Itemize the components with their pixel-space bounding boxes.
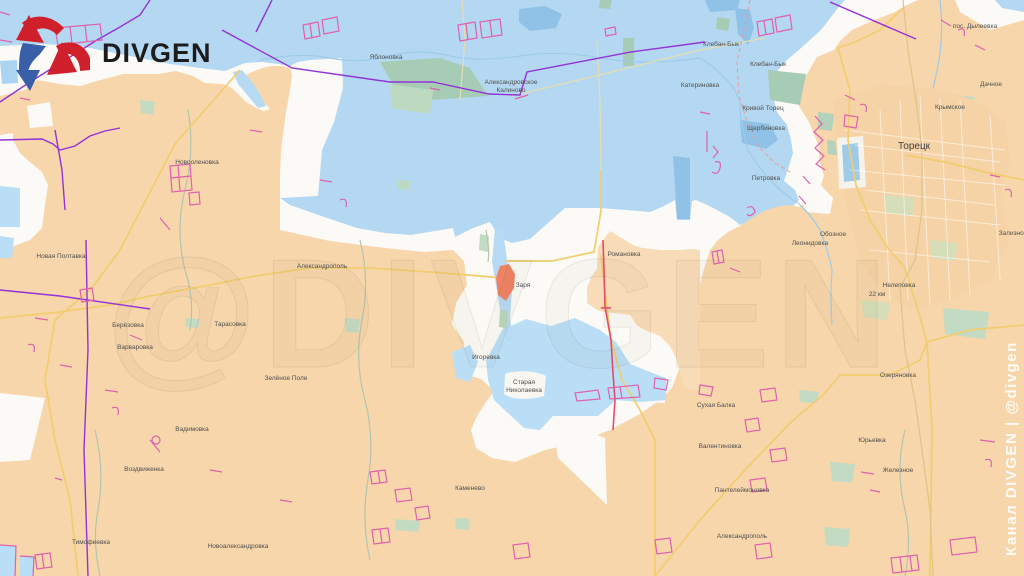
svg-text:Калиново: Калиново xyxy=(496,87,525,94)
svg-text:Дачное: Дачное xyxy=(980,81,1002,88)
svg-text:Новоалександровка: Новоалександровка xyxy=(208,543,269,550)
svg-text:Александровское: Александровское xyxy=(485,79,538,86)
svg-text:Щербиновка: Щербиновка xyxy=(747,124,785,132)
svg-text:Яблоновка: Яблоновка xyxy=(370,53,403,61)
svg-text:Вадимовка: Вадимовка xyxy=(175,426,209,433)
svg-text:Валентиновка: Валентиновка xyxy=(699,443,742,450)
svg-text:Новооленовка: Новооленовка xyxy=(175,159,219,166)
svg-text:Сухая Балка: Сухая Балка xyxy=(697,402,736,409)
svg-text:Петровка: Петровка xyxy=(752,175,781,182)
svg-text:Кривой Торец: Кривой Торец xyxy=(742,104,784,112)
svg-text:Клебан-Бык: Клебан-Бык xyxy=(750,60,786,68)
svg-text:Новая Полтавка: Новая Полтавка xyxy=(36,253,86,260)
svg-text:Тимофеевка: Тимофеевка xyxy=(72,539,110,546)
svg-text:пос. Дылеевка: пос. Дылеевка xyxy=(953,23,998,30)
svg-text:Торецк: Торецк xyxy=(898,141,931,152)
svg-text:Канал DIVGEN | @divgen: Канал DIVGEN | @divgen xyxy=(1003,341,1020,556)
svg-text:Крымское: Крымское xyxy=(935,104,965,111)
svg-text:Каменево: Каменево xyxy=(455,485,485,492)
svg-text:Юрьевка: Юрьевка xyxy=(858,437,886,444)
svg-text:Клебан-Бык: Клебан-Бык xyxy=(703,40,739,48)
svg-text:Железное: Железное xyxy=(883,467,914,474)
svg-text:Пантелеймоновка: Пантелеймоновка xyxy=(715,486,770,494)
svg-text:Воздвиженка: Воздвиженка xyxy=(124,466,164,473)
svg-text:Александрополь: Александрополь xyxy=(717,533,768,540)
svg-text:Зализное: Зализное xyxy=(999,230,1024,237)
svg-text:@DIVGEN: @DIVGEN xyxy=(106,227,893,400)
svg-text:DIVGEN: DIVGEN xyxy=(102,38,212,68)
svg-text:Катериновка: Катериновка xyxy=(681,82,720,89)
